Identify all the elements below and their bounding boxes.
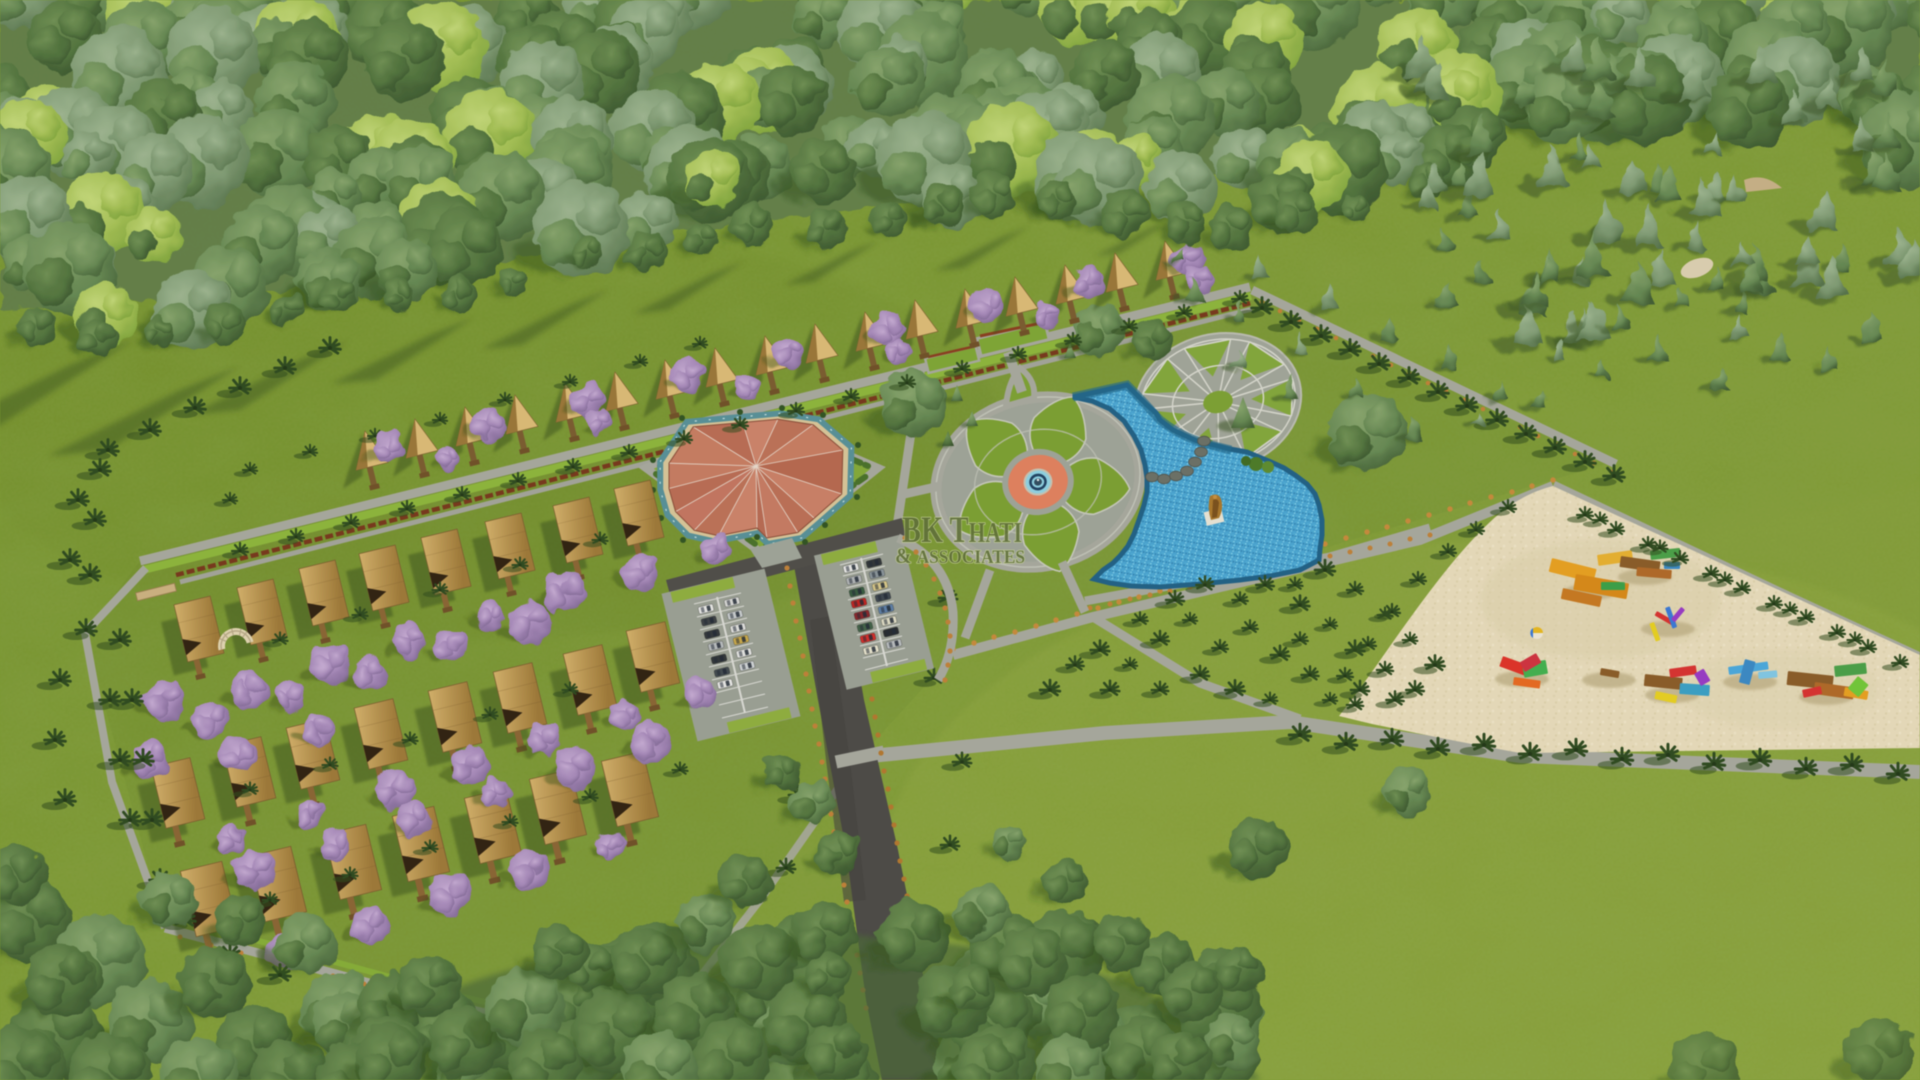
svg-text:& ASSOCIATES: & ASSOCIATES [895, 543, 1025, 568]
